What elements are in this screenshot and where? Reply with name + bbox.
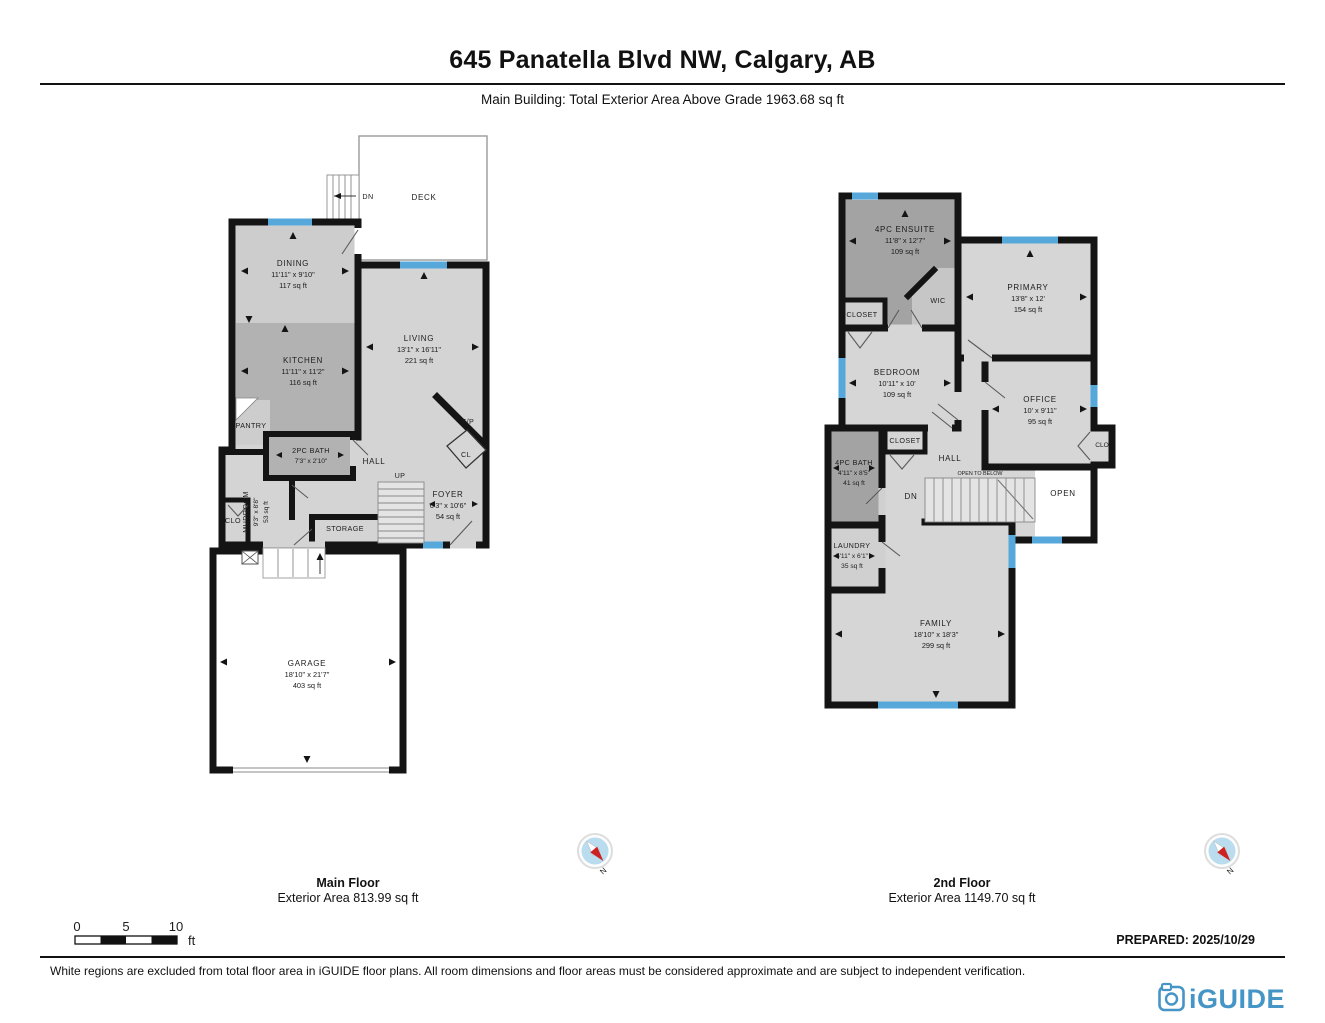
hall2-label: HALL xyxy=(939,454,962,463)
prepared-date: PREPARED: 2025/10/29 xyxy=(1116,933,1255,947)
dining-name: DINING xyxy=(277,259,309,268)
ensuite-dims: 11'8" x 12'7" xyxy=(885,236,925,245)
foyer-dims: 6'3" x 10'6" xyxy=(430,501,467,510)
disclaimer-text: White regions are excluded from total fl… xyxy=(50,964,1025,978)
iguide-logo: iGUIDE xyxy=(1160,984,1286,1014)
bedroom-name: BEDROOM xyxy=(874,368,920,377)
foyer-area: 54 sq ft xyxy=(436,512,460,521)
second-stairs-down xyxy=(925,478,1035,522)
dn2-label: DN xyxy=(905,492,918,501)
closet-ensuite-label: CLOSET xyxy=(846,310,877,319)
family-area: 299 sq ft xyxy=(922,641,950,650)
office-area: 95 sq ft xyxy=(1028,417,1052,426)
primary-dims: 13'8" x 12' xyxy=(1011,294,1045,303)
scale-tick-0: 0 xyxy=(73,919,80,934)
garage-dims: 18'10" x 21'7" xyxy=(285,670,330,679)
dining-dims: 11'11" x 9'10" xyxy=(271,270,315,279)
closet-hall-label: CLOSET xyxy=(889,436,920,445)
scale-tick-10: 10 xyxy=(169,919,183,934)
mudroom-dims: 9'3" x 8'8" xyxy=(253,497,260,526)
primary-area: 154 sq ft xyxy=(1014,305,1042,314)
bath4pc-dims: 4'11" x 8'5" xyxy=(838,470,871,477)
cl-label: CL xyxy=(461,450,471,459)
clo-label: CLO xyxy=(225,516,241,525)
garage-area: 403 sq ft xyxy=(293,681,321,690)
foyer-name: FOYER xyxy=(432,490,463,499)
floorplan-canvas: DN DECK xyxy=(0,0,1325,1023)
open-to-below-label: OPEN TO BELOW xyxy=(957,471,1003,477)
living-name: LIVING xyxy=(404,334,434,343)
bath2pc-name: 2PC BATH xyxy=(292,446,330,455)
bedroom-dims: 10'11" x 10' xyxy=(878,379,916,388)
ensuite-area: 109 sq ft xyxy=(891,247,919,256)
scale-unit: ft xyxy=(188,933,196,948)
ensuite-name: 4PC ENSUITE xyxy=(875,225,935,234)
living-area: 221 sq ft xyxy=(405,356,433,365)
second-floor-area: Exterior Area 1149.70 sq ft xyxy=(812,891,1112,906)
wic-label: WIC xyxy=(930,296,945,305)
family-dims: 18'10" x 18'3" xyxy=(914,630,959,639)
compass-north-label: N xyxy=(1225,866,1235,877)
living-dims: 13'1" x 16'11" xyxy=(397,345,441,354)
garage-steps xyxy=(263,548,325,578)
hall-label: HALL xyxy=(363,457,386,466)
bath4pc-name: 4PC BATH xyxy=(835,458,873,467)
mudroom-name: MUDROOM xyxy=(241,491,250,533)
second-floor-plan: 4PC ENSUITE 11'8" x 12'7" 109 sq ft WIC … xyxy=(828,193,1112,709)
main-floor-name: Main Floor xyxy=(198,876,498,891)
deck-label: DECK xyxy=(411,193,436,202)
deck-dn-label: DN xyxy=(362,192,373,201)
second-floor-caption: 2nd Floor Exterior Area 1149.70 sq ft xyxy=(812,876,1112,906)
laundry-area: 35 sq ft xyxy=(841,563,863,570)
iguide-logo-text: iGUIDE xyxy=(1189,984,1285,1014)
office-name: OFFICE xyxy=(1023,395,1057,404)
main-floor-plan: DN DECK xyxy=(213,136,487,774)
footer-divider xyxy=(40,956,1285,958)
kitchen-dims: 11'11" x 11'2" xyxy=(282,367,325,376)
open-label: OPEN xyxy=(1050,489,1075,498)
bath2pc-dims: 7'3" x 2'10" xyxy=(295,458,328,465)
dining-area: 117 sq ft xyxy=(279,281,307,290)
pantry-label: PANTRY xyxy=(236,421,267,430)
kitchen-name: KITCHEN xyxy=(283,356,323,365)
laundry-name: LAUNDRY xyxy=(833,541,870,550)
main-floor-area: Exterior Area 813.99 sq ft xyxy=(198,891,498,906)
mudroom-area: 53 sq ft xyxy=(263,501,270,523)
garage-name: GARAGE xyxy=(288,659,326,668)
open-area xyxy=(1035,467,1094,540)
clo2-label: CLO xyxy=(1095,442,1109,449)
compass-north-label: N xyxy=(598,866,608,877)
bedroom-area: 109 sq ft xyxy=(883,390,911,399)
compass-main-floor: N xyxy=(578,834,612,876)
iguide-camera-icon xyxy=(1160,984,1184,1010)
up-label: UP xyxy=(395,471,406,480)
second-floor-name: 2nd Floor xyxy=(812,876,1112,891)
main-floor-caption: Main Floor Exterior Area 813.99 sq ft xyxy=(198,876,498,906)
fp-label: F/P xyxy=(462,417,474,426)
scale-tick-5: 5 xyxy=(122,919,129,934)
scale-bar: 0 5 10 ft xyxy=(73,919,195,948)
laundry-dims: 5'11" x 6'1" xyxy=(836,553,869,560)
kitchen-area: 116 sq ft xyxy=(289,378,317,387)
storage-label: STORAGE xyxy=(326,524,364,533)
primary-name: PRIMARY xyxy=(1007,283,1048,292)
compass-second-floor: N xyxy=(1205,834,1239,876)
bath4pc-area: 41 sq ft xyxy=(843,480,865,487)
office-dims: 10' x 9'11" xyxy=(1023,406,1057,415)
family-name: FAMILY xyxy=(920,619,952,628)
main-stairs-up xyxy=(378,482,424,543)
